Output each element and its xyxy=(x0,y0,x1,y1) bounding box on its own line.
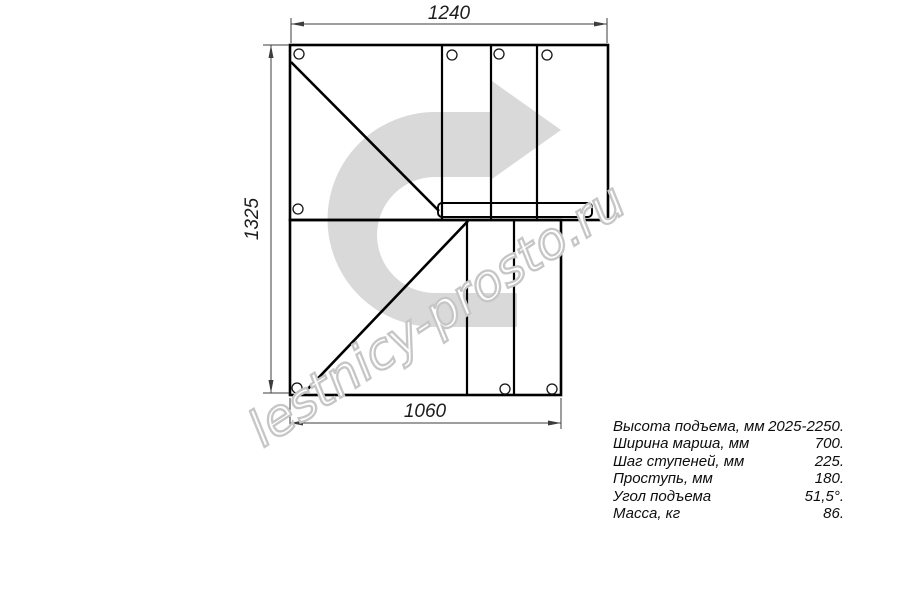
spec-value: 51,5°. xyxy=(805,488,844,505)
spec-value: 2025-2250. xyxy=(768,418,844,435)
spec-label: Проступь, мм xyxy=(613,470,713,487)
dim-arrow-icon xyxy=(269,45,274,58)
spec-value: 180. xyxy=(815,470,844,487)
bottom-dimension-value: 1060 xyxy=(404,401,447,422)
spec-label: Угол подъема xyxy=(613,488,711,505)
staircase-drawing-page: 1240 1325 1060 lestnicy-prosto.ru Высота… xyxy=(0,0,900,600)
spec-row-angle: Угол подъема 51,5°. xyxy=(613,488,844,505)
spec-row-flight-width: Ширина марша, мм 700. xyxy=(613,435,844,452)
screw-hole-icon xyxy=(494,49,504,59)
spec-row-tread: Проступь, мм 180. xyxy=(613,470,844,487)
screw-hole-icon xyxy=(547,384,557,394)
screw-hole-icon xyxy=(542,50,552,60)
spec-value: 225. xyxy=(815,453,844,470)
dim-arrow-icon xyxy=(594,22,607,27)
spec-label: Шаг ступеней, мм xyxy=(613,453,744,470)
dim-arrow-icon xyxy=(291,22,304,27)
top-dimension-value: 1240 xyxy=(428,3,471,24)
spec-value: 700. xyxy=(815,435,844,452)
spec-label: Высота подъема, мм xyxy=(613,418,765,435)
spec-label: Ширина марша, мм xyxy=(613,435,749,452)
spec-row-step-pitch: Шаг ступеней, мм 225. xyxy=(613,453,844,470)
screw-hole-icon xyxy=(447,50,457,60)
screw-hole-icon xyxy=(293,204,303,214)
spec-label: Масса, кг xyxy=(613,505,680,522)
spec-row-height: Высота подъема, мм 2025-2250. xyxy=(613,418,844,435)
spec-table: Высота подъема, мм 2025-2250. Ширина мар… xyxy=(613,418,844,522)
dim-arrow-icon xyxy=(548,421,561,426)
spec-value: 86. xyxy=(823,505,844,522)
left-dimension-value: 1325 xyxy=(242,197,263,240)
screw-hole-icon xyxy=(294,49,304,59)
screw-hole-icon xyxy=(500,384,510,394)
spec-row-mass: Масса, кг 86. xyxy=(613,505,844,522)
